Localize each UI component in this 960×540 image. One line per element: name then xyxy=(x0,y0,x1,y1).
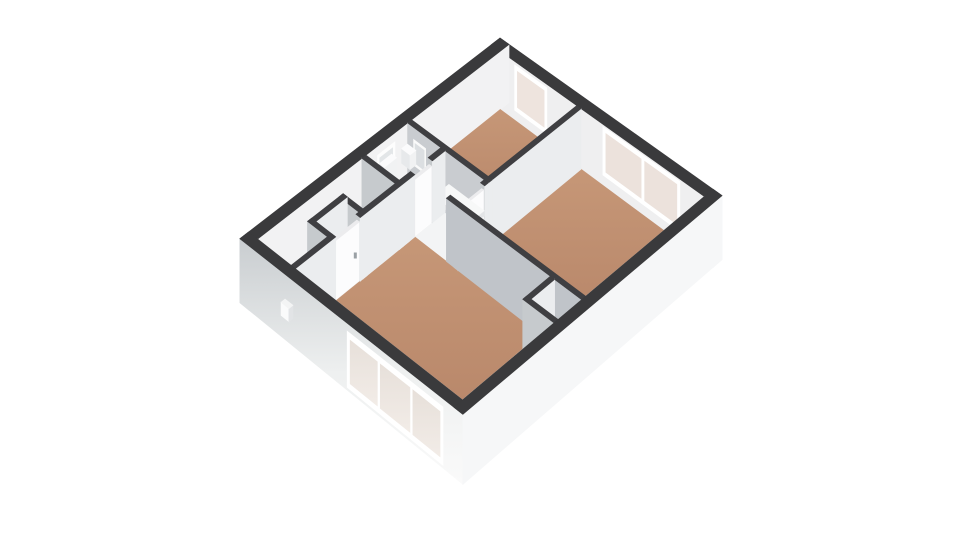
floorplan-render-canvas xyxy=(0,0,960,540)
door-living-room-handle xyxy=(354,253,357,259)
floorplan-3d-view xyxy=(0,0,960,540)
